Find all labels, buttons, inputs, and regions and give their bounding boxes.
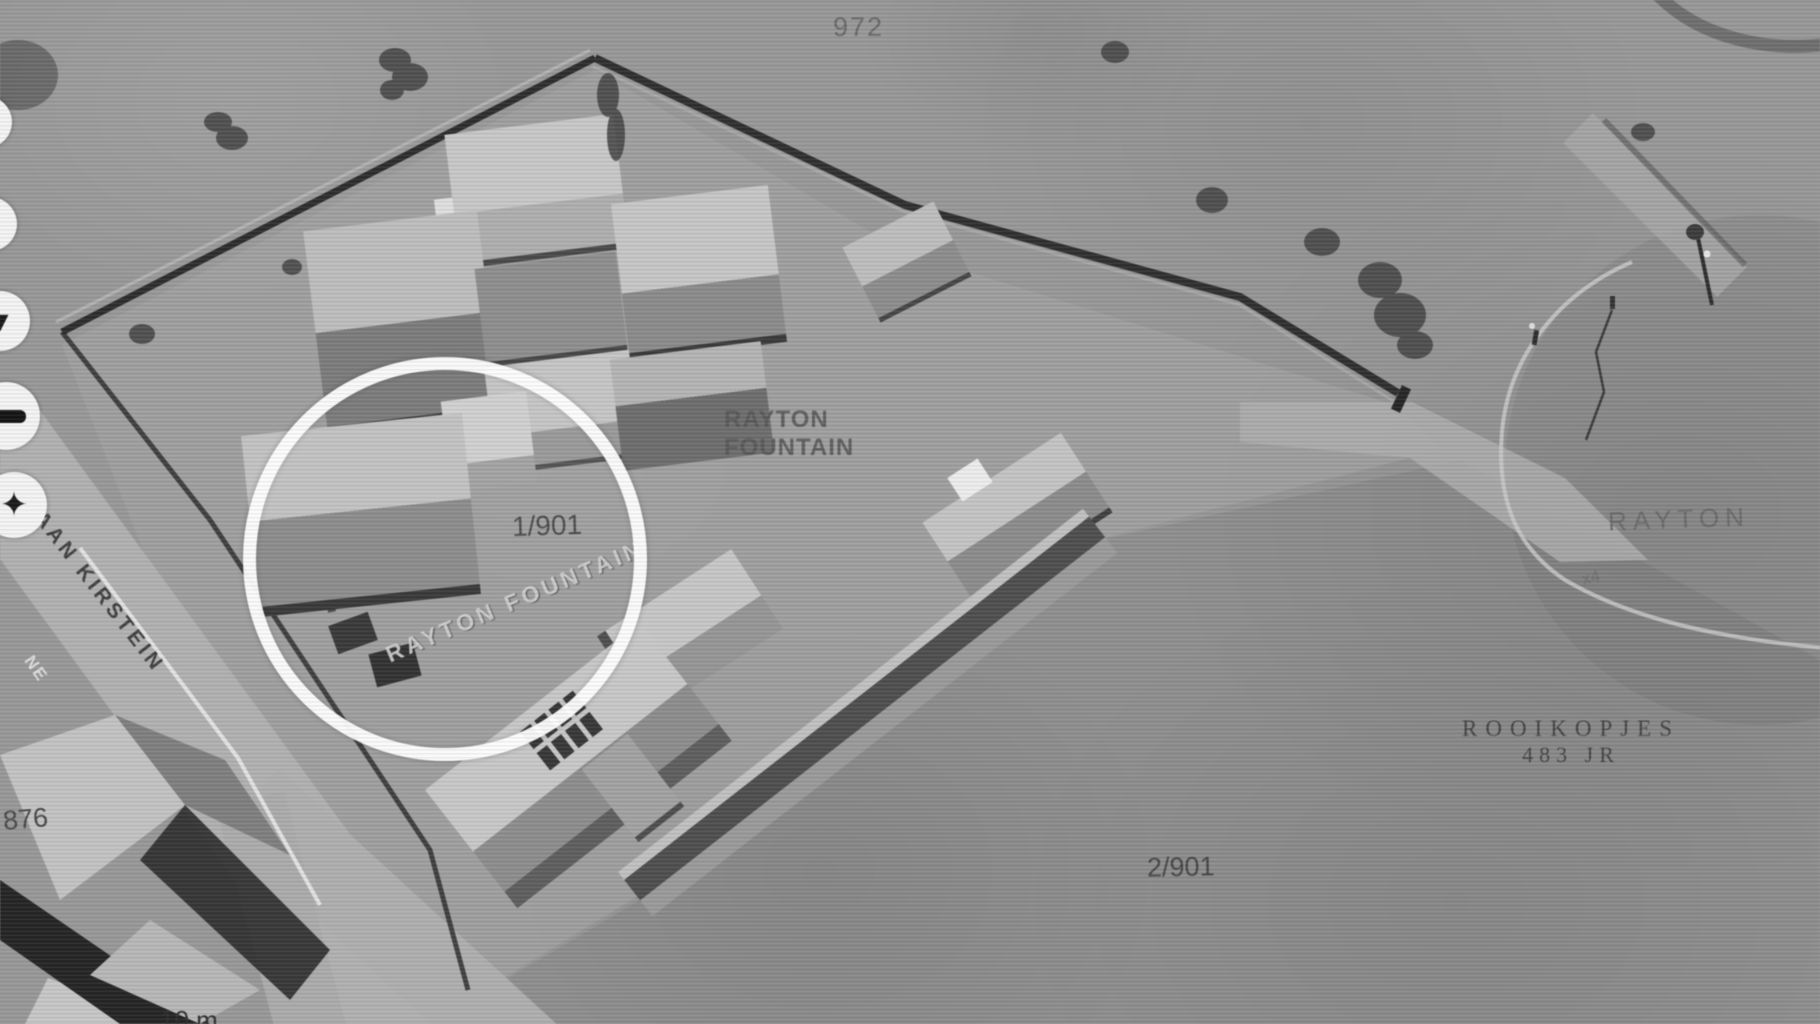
aerial-photo-scene: 972 RAYTON FOUNTAIN 1/901 RAYTON FOUNTAI…	[0, 0, 1820, 1024]
aerial-map-canvas[interactable]: 972 RAYTON FOUNTAIN 1/901 RAYTON FOUNTAI…	[0, 0, 1820, 1024]
bottom-left-buildings	[0, 715, 330, 1024]
farm-name-line2: 483 JR	[1462, 742, 1680, 767]
minus-icon	[0, 410, 26, 423]
stand-number-label: 972	[833, 12, 884, 43]
stand-number-label: 2/901	[1147, 851, 1215, 883]
field-details	[1529, 224, 1712, 440]
stand-number-label: 876	[2, 802, 50, 837]
navigate-star-icon: ✦	[0, 485, 28, 525]
highlight-circle-annotation	[243, 357, 647, 761]
trees	[129, 41, 1655, 359]
place-name-label: RAYTON FOUNTAIN	[724, 406, 854, 461]
farm-name-line1: ROOIKOPJES	[1462, 716, 1680, 742]
place-name-label: RAYTON	[1608, 503, 1751, 538]
marker-label: x4	[1580, 566, 1602, 589]
place-name-line1: RAYTON	[724, 406, 854, 434]
chevron-down-icon: ▾	[0, 301, 9, 341]
farm-name-label: ROOIKOPJES 483 JR	[1462, 716, 1680, 768]
scale-bar-label: 10 m	[160, 1006, 218, 1024]
place-name-line2: FOUNTAIN	[724, 434, 854, 462]
